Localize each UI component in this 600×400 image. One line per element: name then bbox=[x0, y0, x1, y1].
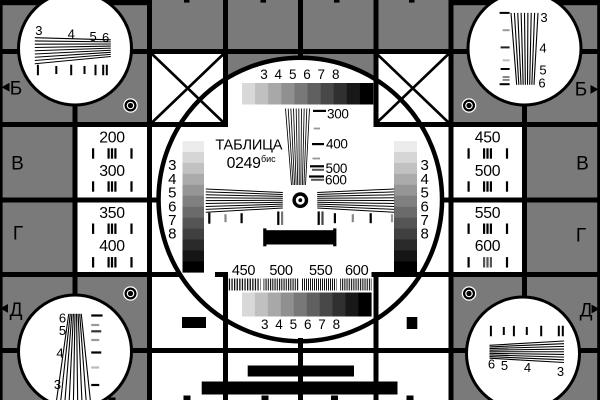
svg-text:600: 600 bbox=[325, 172, 347, 187]
svg-text:6: 6 bbox=[102, 30, 109, 45]
svg-text:4: 4 bbox=[539, 41, 546, 56]
svg-text:8: 8 bbox=[332, 67, 340, 82]
svg-text:5: 5 bbox=[501, 358, 508, 373]
svg-text:400: 400 bbox=[326, 137, 348, 152]
svg-text:5: 5 bbox=[89, 29, 96, 44]
svg-text:300: 300 bbox=[327, 107, 349, 122]
svg-text:500: 500 bbox=[475, 163, 501, 180]
svg-text:7: 7 bbox=[318, 317, 326, 332]
svg-text:бис: бис bbox=[261, 154, 276, 164]
svg-text:4: 4 bbox=[68, 27, 75, 42]
svg-text:300: 300 bbox=[99, 163, 125, 180]
svg-text:Б: Б bbox=[10, 78, 22, 99]
svg-text:5: 5 bbox=[59, 323, 66, 338]
svg-text:6: 6 bbox=[538, 75, 545, 90]
svg-text:В: В bbox=[11, 153, 24, 174]
svg-text:5: 5 bbox=[290, 317, 298, 332]
svg-text:Г: Г bbox=[13, 223, 23, 244]
svg-text:0249: 0249 bbox=[227, 155, 261, 172]
svg-text:3: 3 bbox=[557, 364, 564, 379]
svg-text:600: 600 bbox=[345, 263, 369, 279]
svg-text:450: 450 bbox=[475, 130, 501, 147]
svg-text:3: 3 bbox=[261, 317, 269, 332]
svg-text:6: 6 bbox=[303, 67, 311, 82]
svg-text:6: 6 bbox=[488, 356, 495, 371]
svg-text:3: 3 bbox=[54, 377, 61, 392]
svg-text:450: 450 bbox=[232, 263, 256, 279]
svg-text:4: 4 bbox=[275, 317, 283, 332]
svg-text:ТАБЛИЦА: ТАБЛИЦА bbox=[215, 137, 282, 153]
svg-text:600: 600 bbox=[475, 238, 501, 255]
svg-text:3: 3 bbox=[540, 10, 547, 25]
svg-text:Б: Б bbox=[575, 79, 587, 100]
svg-text:3: 3 bbox=[35, 23, 42, 38]
svg-text:8: 8 bbox=[168, 225, 176, 242]
svg-text:400: 400 bbox=[99, 238, 125, 255]
svg-text:Г: Г bbox=[576, 225, 586, 246]
svg-text:5: 5 bbox=[289, 67, 297, 82]
svg-text:8: 8 bbox=[333, 317, 341, 332]
svg-text:7: 7 bbox=[318, 67, 326, 82]
svg-text:Д: Д bbox=[580, 300, 593, 321]
svg-text:3: 3 bbox=[260, 67, 268, 82]
svg-text:6: 6 bbox=[304, 317, 312, 332]
svg-text:4: 4 bbox=[56, 346, 63, 361]
svg-text:550: 550 bbox=[309, 263, 333, 279]
svg-text:4: 4 bbox=[524, 360, 531, 375]
svg-text:550: 550 bbox=[475, 205, 501, 222]
svg-text:4: 4 bbox=[275, 67, 283, 82]
svg-text:350: 350 bbox=[99, 205, 125, 222]
svg-text:В: В bbox=[576, 153, 589, 174]
svg-text:200: 200 bbox=[99, 130, 125, 147]
svg-text:Д: Д bbox=[10, 300, 23, 321]
svg-text:500: 500 bbox=[269, 263, 293, 279]
svg-text:8: 8 bbox=[421, 225, 429, 242]
